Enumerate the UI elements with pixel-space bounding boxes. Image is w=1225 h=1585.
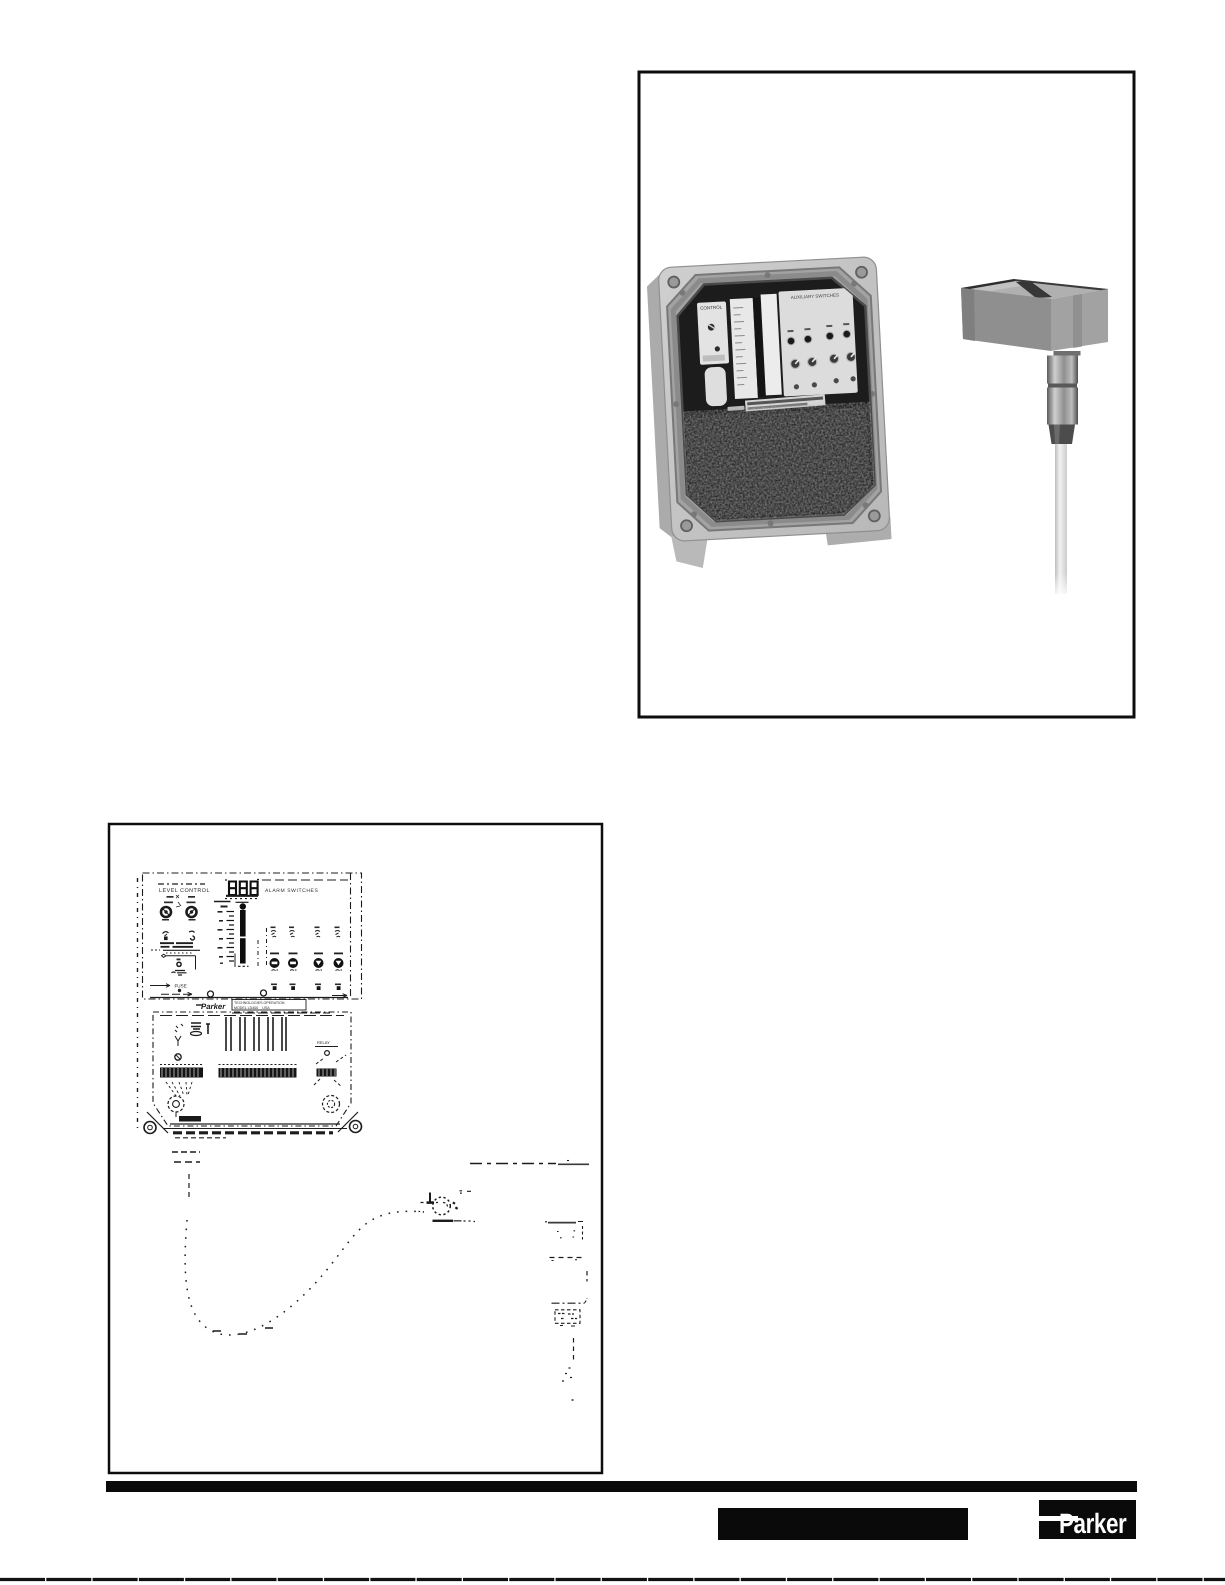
svg-text:ALARM SWITCHES: ALARM SWITCHES [265,888,318,894]
svg-text:TECHNOLOGIES OPERATION: TECHNOLOGIES OPERATION [234,1001,285,1005]
svg-text:Parker: Parker [201,1002,226,1011]
svg-text:Parker: Parker [1059,1508,1127,1539]
svg-text:LEVEL CONTROL: LEVEL CONTROL [159,888,210,894]
svg-text:RELAY: RELAY [317,1040,330,1045]
svg-text:MODEL LD400 USA: MODEL LD400 USA [234,1006,270,1010]
svg-text:FUSE: FUSE [175,984,187,989]
